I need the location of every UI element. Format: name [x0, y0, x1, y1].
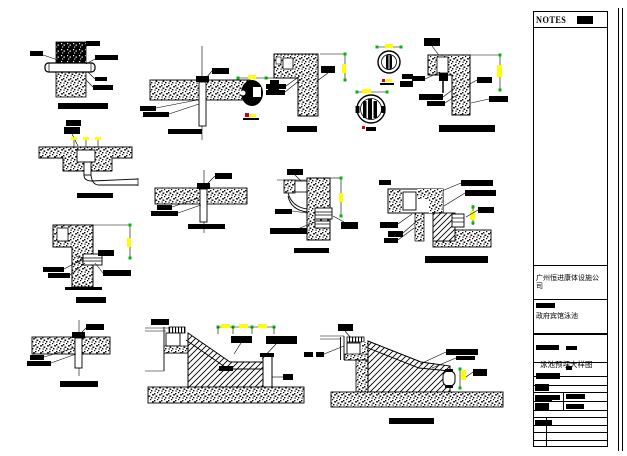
redacted-text-bar — [536, 345, 559, 350]
detail-title-redacted — [77, 193, 113, 198]
detail-fitting-plan-views — [356, 44, 414, 131]
sub-title-cell — [534, 362, 607, 376]
sign-row — [534, 376, 607, 385]
redacted-text-bar — [566, 394, 585, 399]
sign-row — [534, 410, 607, 417]
detail-pool-wall-corner-c — [43, 224, 132, 304]
detail-overflow-gutter-corner — [379, 180, 496, 263]
detail-pool-wall-corner-b — [412, 38, 508, 132]
detail-pipe-through-floor-c — [27, 320, 110, 387]
detail-pipe-through-wall — [30, 41, 118, 126]
sign-row — [534, 392, 607, 401]
redacted-text-bar — [566, 404, 584, 409]
detail-title-redacted — [287, 126, 317, 132]
drawing-title-cell: 泳池预埋大样图 — [534, 333, 607, 362]
sheet-frame-line-outer — [618, 8, 619, 451]
detail-floor-niche-drain — [39, 127, 138, 198]
redacted-text-bar — [577, 16, 593, 24]
redacted-text-bar — [536, 303, 555, 308]
detail-title-redacted — [188, 224, 225, 229]
sheet-frame-line-inner — [622, 8, 623, 451]
detail-title-redacted — [294, 248, 329, 253]
detail-title-redacted — [168, 129, 202, 134]
project-cell: 政府宾馆泳池 — [534, 299, 607, 333]
detail-title-redacted — [58, 103, 108, 109]
company-cell: 广州恒进康体设施公司 — [534, 265, 607, 299]
redacted-text-bar — [566, 346, 577, 350]
revision-row — [534, 440, 607, 448]
detail-title-redacted — [76, 297, 106, 303]
detail-wall-inlet-fitting — [270, 169, 358, 253]
revision-row — [534, 425, 607, 433]
notes-header-row: NOTES — [534, 12, 607, 28]
sign-row — [534, 401, 607, 410]
title-block: NOTES 广州恒进康体设施公司 政府宾馆泳池 泳池预埋大样图 — [533, 11, 608, 447]
cell-divider — [563, 393, 564, 401]
revision-row — [534, 432, 607, 440]
redacted-text-bar — [535, 403, 549, 410]
revision-row — [534, 417, 607, 425]
project-name: 政府宾馆泳池 — [536, 313, 605, 321]
detail-title-redacted — [439, 125, 495, 132]
company-name: 广州恒进康体设施公司 — [536, 275, 605, 290]
detail-title-redacted — [389, 418, 434, 424]
detail-pipe-through-floor-b — [151, 170, 247, 233]
detail-title-redacted — [425, 256, 488, 263]
sign-row — [534, 385, 607, 392]
notes-header-label: NOTES — [536, 15, 566, 25]
cell-divider — [546, 441, 547, 448]
detail-pool-wall-corner-a — [266, 53, 347, 133]
detail-pipe-through-floor-a — [140, 46, 250, 140]
cad-sheet: NOTES 广州恒进康体设施公司 政府宾馆泳池 泳池预埋大样图 — [0, 0, 627, 456]
detail-pool-edge-gutter-b — [316, 324, 503, 424]
detail-pool-edge-gutter-a — [145, 319, 313, 403]
notes-body-empty — [534, 28, 607, 265]
redacted-text-bar — [566, 366, 572, 370]
detail-title-redacted — [60, 381, 98, 387]
cell-divider — [563, 402, 564, 410]
